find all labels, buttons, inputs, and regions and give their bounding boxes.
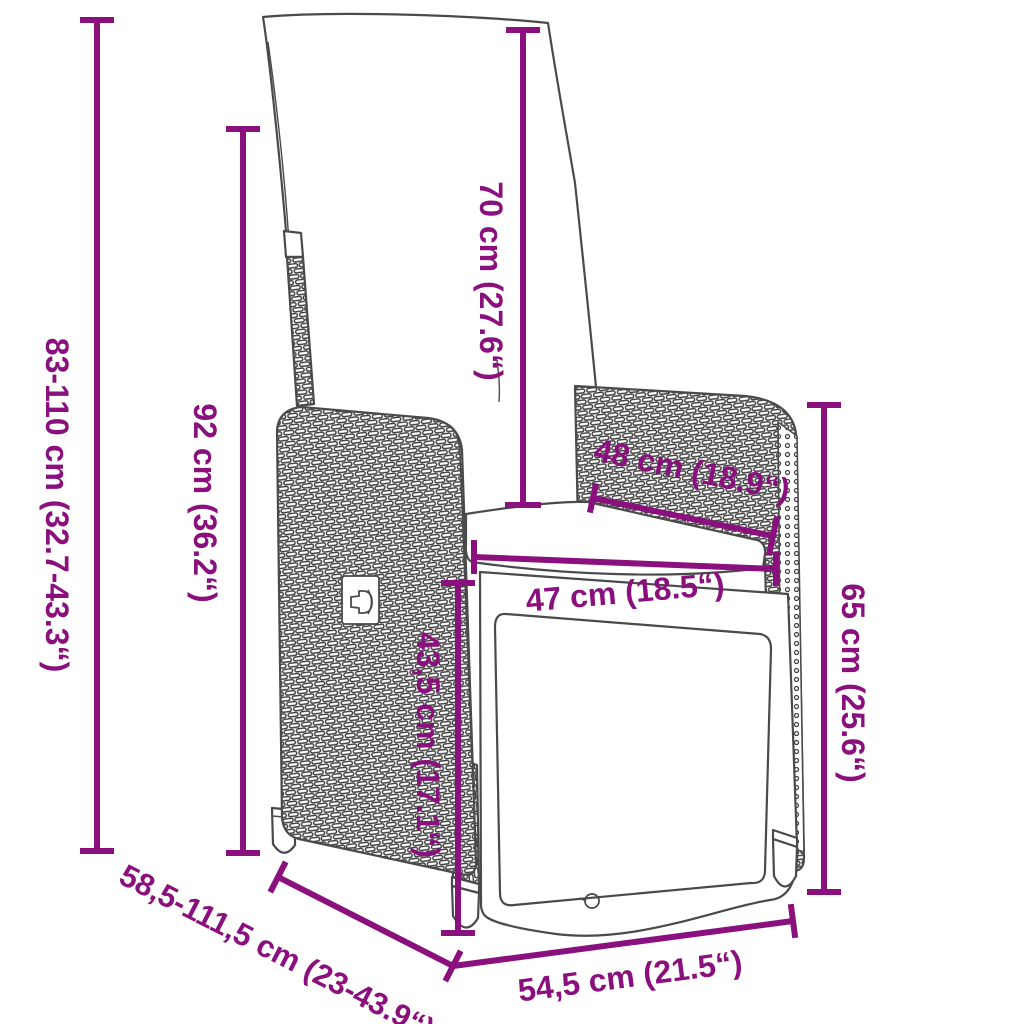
dimension-seat-side-height: 65 cm (25.6“) xyxy=(807,405,871,892)
dimension-depth-range: 58,5-111,5 cm (23-43.9“) xyxy=(114,857,461,1024)
brand-logo-patch xyxy=(342,576,379,624)
dimension-label-height-backrest: 92 cm (36.2“) xyxy=(187,403,223,602)
dimension-label-cushion-height: 70 cm (27.6“) xyxy=(473,181,509,380)
chair-leg-front-right xyxy=(773,830,797,887)
dimension-height-total: 83-110 cm (32.7-43.3“) xyxy=(39,20,114,851)
product-dimension-diagram: 83-110 cm (32.7-43.3“) 92 cm (36.2“) 70 … xyxy=(0,0,1024,1024)
dimension-label-seat-side-height: 65 cm (25.6“) xyxy=(835,583,871,782)
diagram-canvas: 83-110 cm (32.7-43.3“) 92 cm (36.2“) 70 … xyxy=(0,0,1024,1024)
footrest-panel xyxy=(480,572,797,936)
footrest-cushion xyxy=(495,614,771,905)
dimension-height-backrest: 92 cm (36.2“) xyxy=(187,129,260,853)
dimension-label-height-total: 83-110 cm (32.7-43.3“) xyxy=(39,338,75,672)
dimension-label-footrest-height: 43,5 cm (17.1“) xyxy=(410,632,446,858)
